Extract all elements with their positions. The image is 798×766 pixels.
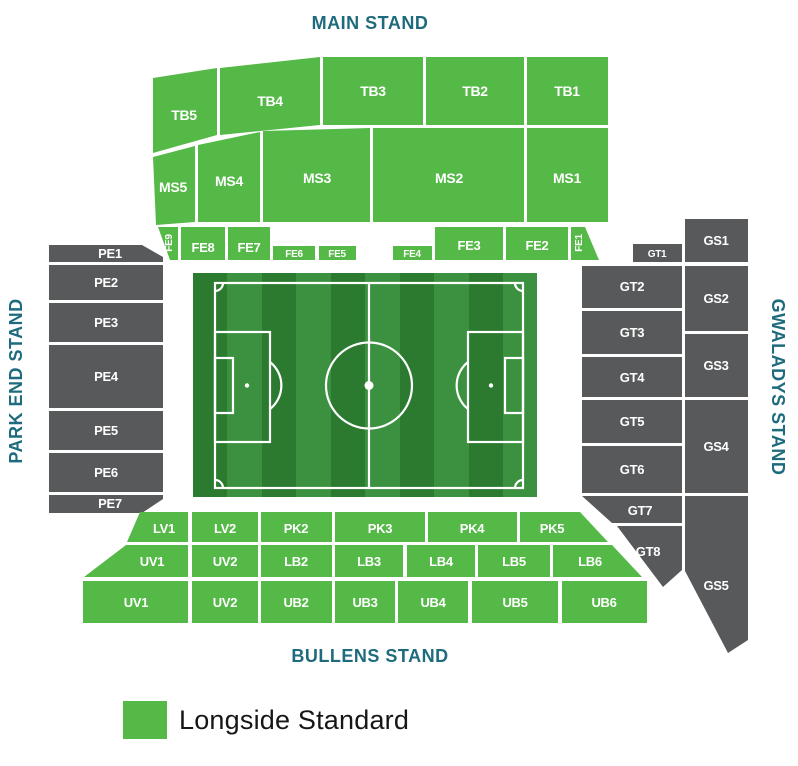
stadium-seating-map: MAIN STAND BULLENS STAND PARK END STAND … [0, 0, 798, 766]
svg-text:LB3: LB3 [357, 554, 381, 569]
svg-text:TB5: TB5 [171, 107, 197, 123]
svg-text:PE4: PE4 [94, 369, 119, 384]
section-ms5[interactable]: MS5 [153, 146, 195, 225]
svg-text:PK2: PK2 [284, 521, 308, 536]
section-tb5[interactable]: TB5 [153, 68, 217, 153]
svg-text:UB3: UB3 [352, 595, 377, 610]
section-fe7[interactable]: FE7 [228, 227, 270, 260]
section-gt7: GT7 [582, 496, 682, 523]
section-lb4[interactable]: LB4 [407, 545, 475, 577]
svg-text:FE7: FE7 [238, 240, 261, 255]
section-ub6[interactable]: UB6 [562, 581, 647, 623]
svg-text:UV2: UV2 [213, 595, 237, 610]
svg-text:UV1: UV1 [140, 554, 164, 569]
section-pe1: PE1 [49, 245, 163, 262]
section-pe2: PE2 [49, 265, 163, 300]
section-gt3: GT3 [582, 311, 682, 354]
section-gs5: GS5 [685, 496, 748, 653]
svg-text:MS2: MS2 [435, 170, 463, 186]
section-fe8[interactable]: FE8 [181, 227, 225, 260]
svg-text:GS2: GS2 [703, 291, 728, 306]
section-uv2-upper[interactable]: UV2 [192, 545, 258, 577]
park-end-stand-label: PARK END STAND [6, 298, 26, 463]
section-ms1[interactable]: MS1 [527, 128, 608, 222]
svg-text:TB4: TB4 [257, 93, 283, 109]
svg-text:TB1: TB1 [554, 83, 580, 99]
bullens-stand-label: BULLENS STAND [291, 646, 448, 666]
section-uv1-upper[interactable]: UV1 [84, 545, 188, 577]
svg-text:GT8: GT8 [636, 544, 660, 559]
svg-text:PE3: PE3 [94, 315, 118, 330]
svg-text:GS1: GS1 [703, 233, 728, 248]
svg-text:GT5: GT5 [620, 414, 644, 429]
section-pe3: PE3 [49, 303, 163, 342]
section-gt8: GT8 [617, 526, 682, 587]
svg-text:LB6: LB6 [578, 554, 602, 569]
section-uv1-lower[interactable]: UV1 [83, 581, 188, 623]
svg-text:FE6: FE6 [285, 249, 303, 260]
svg-text:FE2: FE2 [526, 238, 549, 253]
svg-text:LB2: LB2 [284, 554, 308, 569]
svg-text:TB2: TB2 [462, 83, 488, 99]
svg-text:MS4: MS4 [215, 173, 243, 189]
section-gt5: GT5 [582, 400, 682, 443]
section-gt2: GT2 [582, 266, 682, 308]
svg-text:PK4: PK4 [460, 521, 485, 536]
section-pe5: PE5 [49, 411, 163, 450]
svg-text:FE3: FE3 [458, 238, 481, 253]
svg-text:MS1: MS1 [553, 170, 581, 186]
svg-text:PE6: PE6 [94, 465, 118, 480]
section-gs4: GS4 [685, 400, 748, 493]
gwaladys-stand-label: GWALADYS STAND [768, 299, 788, 476]
svg-text:FE1: FE1 [574, 234, 585, 252]
svg-text:GS3: GS3 [703, 358, 728, 373]
section-ms4[interactable]: MS4 [198, 132, 260, 222]
section-ub4[interactable]: UB4 [398, 581, 468, 623]
svg-text:FE5: FE5 [328, 249, 346, 260]
svg-text:FE9: FE9 [164, 234, 175, 252]
svg-text:GT6: GT6 [620, 462, 644, 477]
svg-text:FE4: FE4 [403, 249, 421, 260]
section-pk2[interactable]: PK2 [261, 512, 332, 542]
svg-text:PE1: PE1 [98, 246, 122, 261]
svg-text:GS4: GS4 [703, 439, 729, 454]
seating-map-svg: MAIN STAND BULLENS STAND PARK END STAND … [0, 0, 798, 766]
svg-text:MS3: MS3 [303, 170, 331, 186]
section-ms2[interactable]: MS2 [373, 128, 524, 222]
svg-text:PK3: PK3 [368, 521, 392, 536]
section-pe7: PE7 [49, 495, 163, 513]
svg-text:GT4: GT4 [620, 370, 645, 385]
section-ub3[interactable]: UB3 [335, 581, 395, 623]
svg-text:LB4: LB4 [429, 554, 454, 569]
section-fe4[interactable]: FE4 [393, 246, 432, 260]
section-fe1[interactable]: FE1 [571, 227, 599, 260]
svg-text:UB2: UB2 [283, 595, 308, 610]
section-gt6: GT6 [582, 446, 682, 493]
section-fe2[interactable]: FE2 [506, 227, 568, 260]
svg-text:LV1: LV1 [153, 521, 175, 536]
section-lb2[interactable]: LB2 [261, 545, 332, 577]
svg-text:TB3: TB3 [360, 83, 386, 99]
section-pk5[interactable]: PK5 [520, 512, 608, 542]
legend-label: Longside Standard [179, 705, 409, 736]
section-tb4[interactable]: TB4 [220, 57, 320, 135]
svg-text:GT2: GT2 [620, 279, 644, 294]
svg-text:GS5: GS5 [703, 578, 728, 593]
section-pe6: PE6 [49, 453, 163, 492]
svg-text:LB5: LB5 [502, 554, 526, 569]
svg-text:GT7: GT7 [628, 503, 652, 518]
section-lb6[interactable]: LB6 [553, 545, 642, 577]
section-uv2-lower[interactable]: UV2 [192, 581, 258, 623]
football-pitch [193, 273, 537, 497]
section-ub5[interactable]: UB5 [472, 581, 558, 623]
section-tb1[interactable]: TB1 [527, 57, 608, 125]
section-gt1: GT1 [633, 244, 682, 262]
section-tb2[interactable]: TB2 [426, 57, 524, 125]
section-gs3: GS3 [685, 334, 748, 397]
section-tb3[interactable]: TB3 [323, 57, 423, 125]
section-gs2: GS2 [685, 266, 748, 331]
section-pk4[interactable]: PK4 [428, 512, 517, 542]
svg-text:GT1: GT1 [648, 249, 667, 260]
svg-text:LV2: LV2 [214, 521, 236, 536]
section-lb5[interactable]: LB5 [478, 545, 550, 577]
main-stand-label: MAIN STAND [312, 13, 429, 33]
section-gs1: GS1 [685, 219, 748, 262]
section-pe4: PE4 [49, 345, 163, 408]
section-fe9[interactable]: FE9 [158, 227, 178, 260]
section-lv1[interactable]: LV1 [127, 512, 188, 542]
legend: Longside Standard [123, 701, 409, 739]
svg-text:UB5: UB5 [502, 595, 527, 610]
section-fe3[interactable]: FE3 [435, 227, 503, 260]
section-gt4: GT4 [582, 357, 682, 397]
section-lb3[interactable]: LB3 [335, 545, 403, 577]
section-pk3[interactable]: PK3 [335, 512, 425, 542]
svg-text:PE5: PE5 [94, 423, 118, 438]
svg-text:PE2: PE2 [94, 275, 118, 290]
svg-text:PE7: PE7 [98, 496, 122, 511]
svg-text:UV2: UV2 [213, 554, 237, 569]
section-lv2[interactable]: LV2 [192, 512, 258, 542]
section-ms3[interactable]: MS3 [263, 128, 370, 222]
section-fe6[interactable]: FE6 [273, 246, 315, 260]
section-ub2[interactable]: UB2 [261, 581, 332, 623]
svg-text:PK5: PK5 [540, 521, 564, 536]
svg-text:MS5: MS5 [159, 179, 187, 195]
svg-text:UV1: UV1 [124, 595, 148, 610]
svg-text:UB4: UB4 [420, 595, 446, 610]
section-fe5[interactable]: FE5 [319, 246, 356, 260]
svg-text:GT3: GT3 [620, 325, 644, 340]
svg-text:UB6: UB6 [591, 595, 616, 610]
legend-swatch-longside-standard [123, 701, 167, 739]
svg-text:FE8: FE8 [192, 240, 215, 255]
